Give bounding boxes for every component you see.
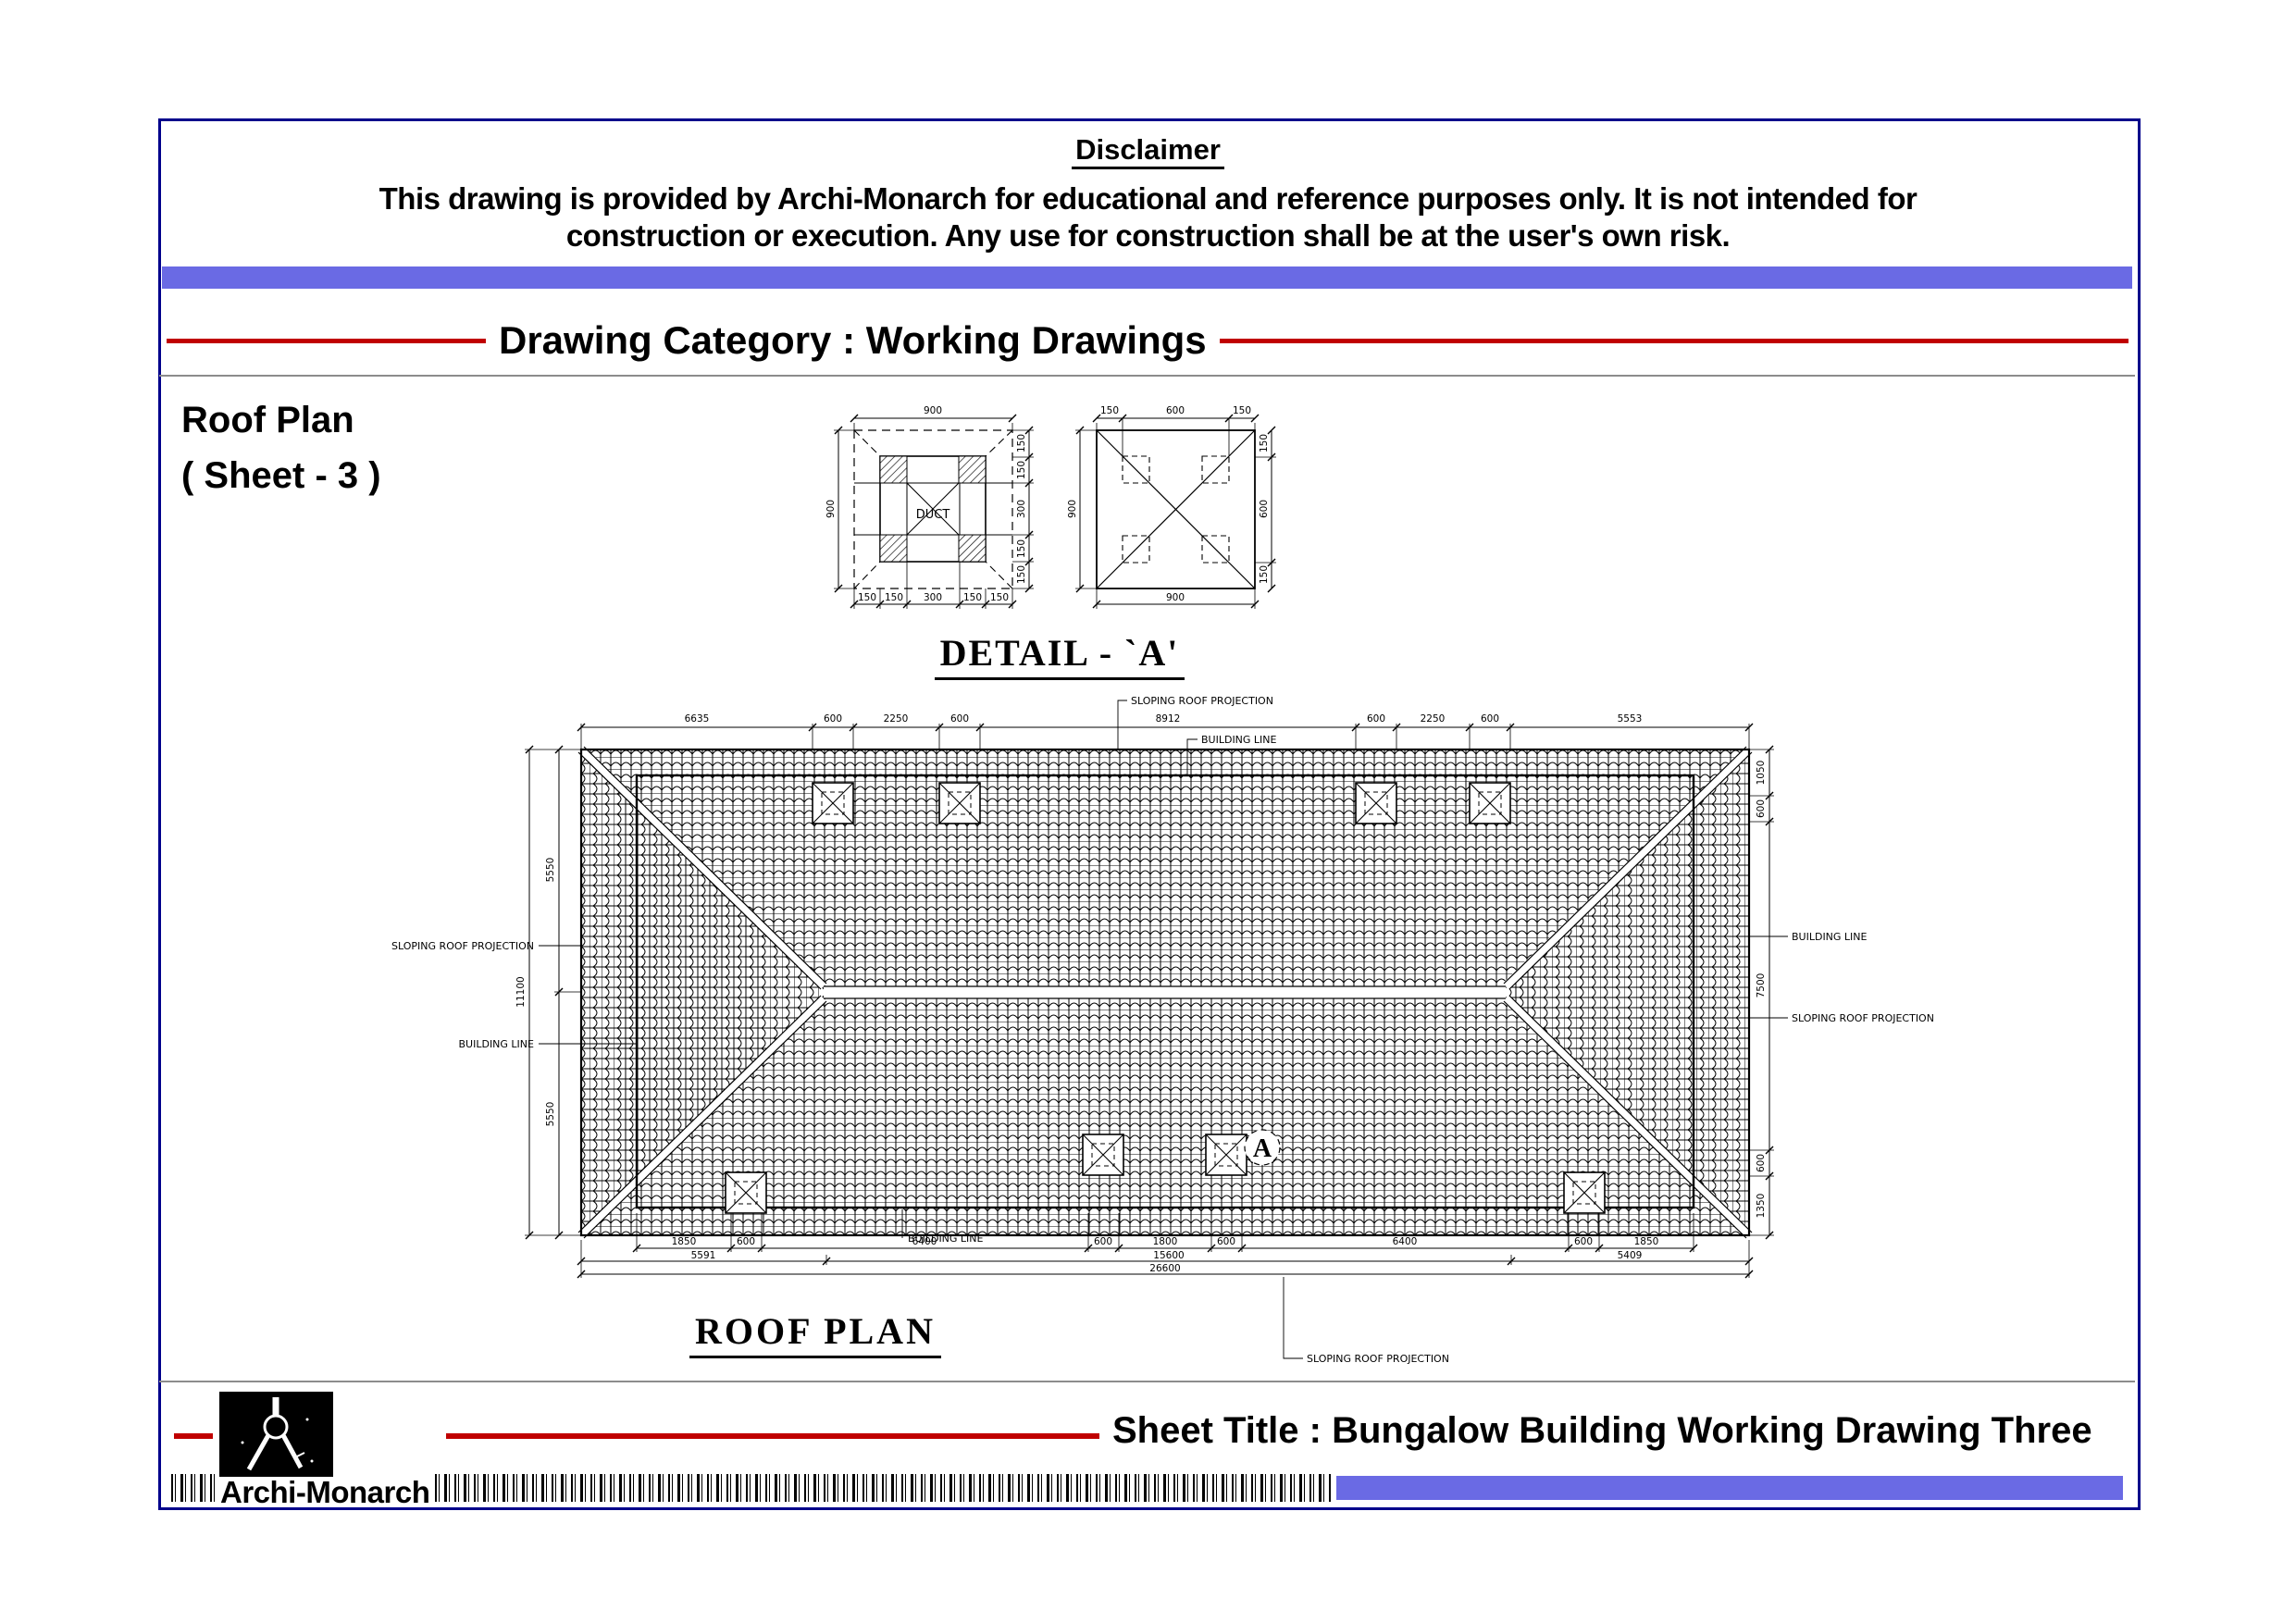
page-title: Roof Plan	[181, 400, 354, 441]
footer-redline	[446, 1433, 1099, 1439]
detail-a-title: DETAIL - `A'	[888, 631, 1231, 675]
disclaimer-title: Disclaimer	[0, 133, 2296, 167]
roof-plan-title: ROOF PLAN	[689, 1309, 941, 1353]
category-redline-left	[167, 339, 486, 343]
footer-red-dash	[174, 1433, 213, 1439]
accent-bar-bottom	[1336, 1476, 2123, 1500]
compass-icon	[219, 1392, 333, 1477]
accent-bar-top	[162, 266, 2132, 289]
brand-name: Archi-Monarch	[220, 1475, 429, 1510]
drawing-sheet: DUCT 900 900 150 150 300 150 150 150 150…	[0, 0, 2296, 1623]
barcode-left	[171, 1474, 215, 1502]
page-subtitle: ( Sheet - 3 )	[181, 455, 381, 497]
divider-top	[159, 375, 2135, 377]
category-row: Drawing Category : Working Drawings	[167, 318, 2128, 363]
disclaimer-line1: This drawing is provided by Archi-Monarc…	[0, 181, 2296, 217]
barcode-main	[435, 1474, 1333, 1502]
sheet-title: Sheet Title : Bungalow Building Working …	[1112, 1410, 2092, 1452]
category-redline-right	[1220, 339, 2128, 343]
archi-monarch-logo	[219, 1392, 333, 1477]
divider-footer	[159, 1381, 2135, 1382]
category-label: Drawing Category : Working Drawings	[499, 318, 1207, 363]
disclaimer-line2: construction or execution. Any use for c…	[0, 218, 2296, 254]
